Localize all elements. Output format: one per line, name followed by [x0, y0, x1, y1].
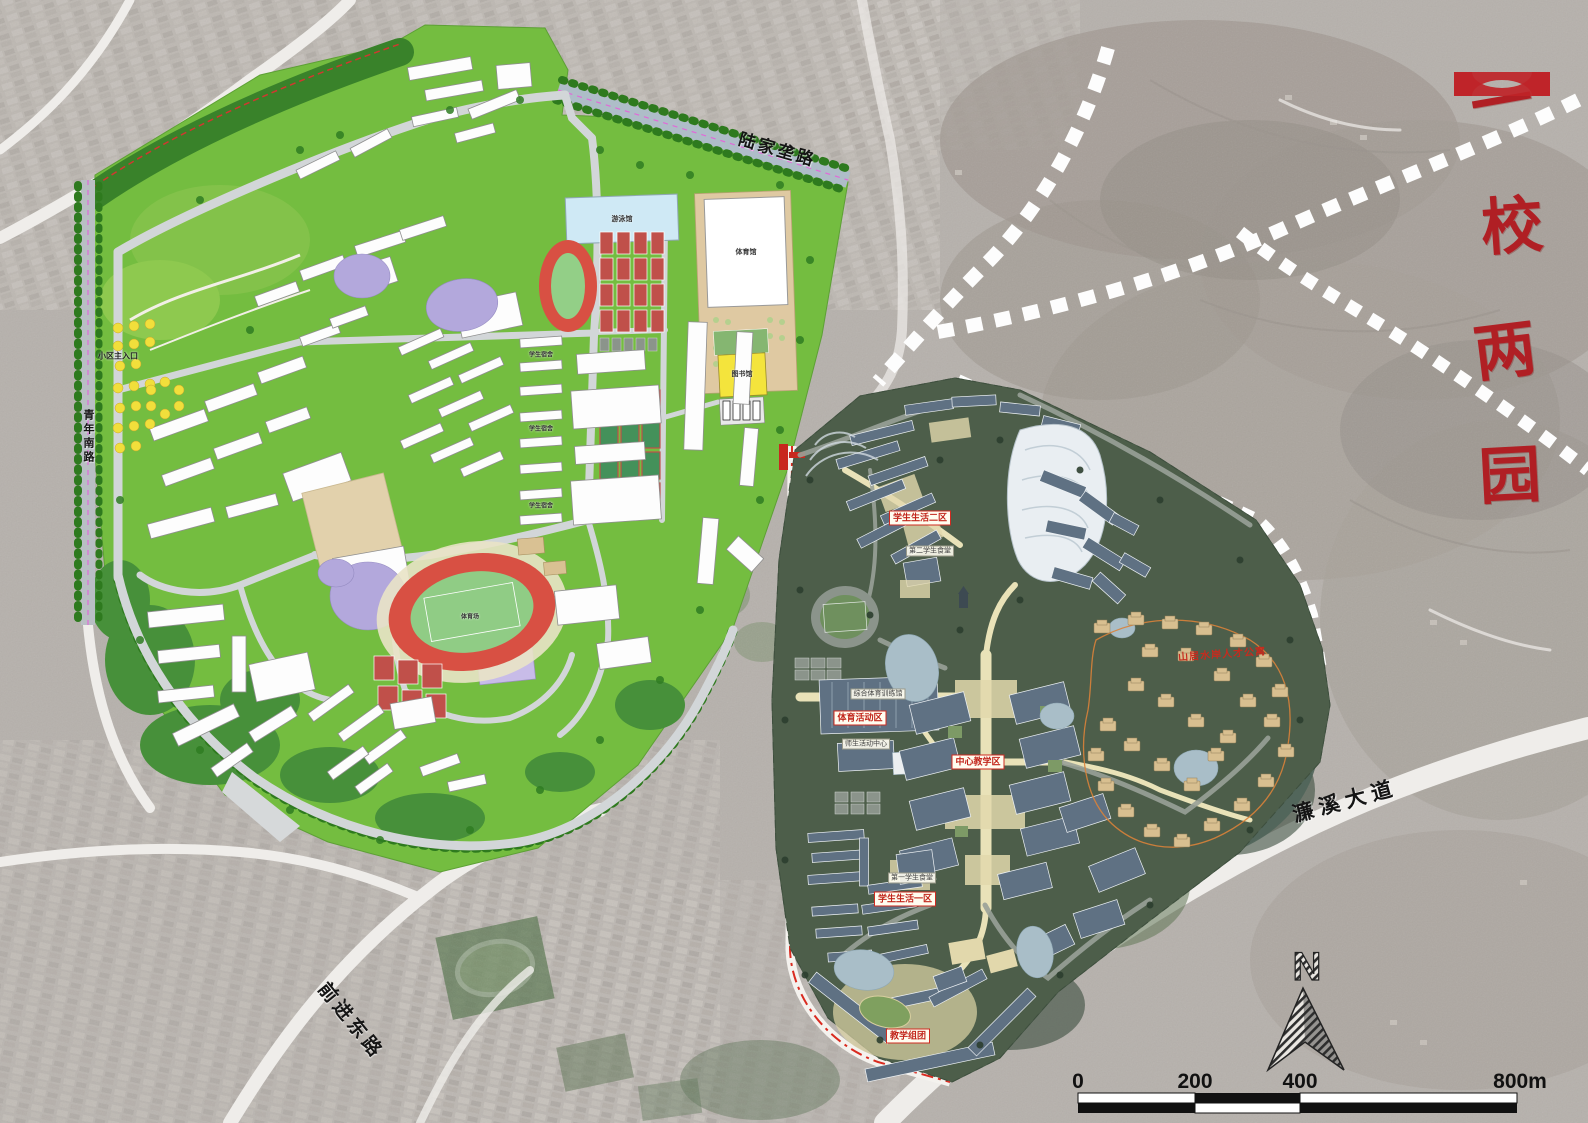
zone-label-student-life-2: 学生生活二区 [889, 511, 951, 526]
entrance-label: 小区主入口 [98, 351, 138, 362]
zone-label-central-teaching: 中心教学区 [951, 755, 1004, 770]
title-char-3: 两 [1470, 316, 1540, 389]
gymnasium-label: 体育馆 [736, 247, 757, 257]
svg-text:N: N [1293, 945, 1322, 989]
plan-title: 一 校 两 园 [1452, 70, 1564, 510]
map-canvas: N 0 200 400 800m 一 校 两 园 濂溪大道 前进东路 青年南路 … [0, 0, 1588, 1123]
activity-center-label: 师生活动中心 [842, 739, 890, 750]
title-char-4: 园 [1477, 442, 1542, 511]
svg-text:400: 400 [1282, 1070, 1317, 1093]
training-hall-label: 综合体育训练馆 [851, 689, 906, 700]
svg-text:0: 0 [1072, 1070, 1084, 1093]
zone-label-teaching-cluster: 教学组团 [886, 1029, 930, 1044]
site-plan-svg: N 0 200 400 800m [0, 0, 1588, 1123]
natatorium-label: 游泳馆 [612, 214, 633, 224]
stadium-label: 体育场 [461, 612, 479, 621]
road-label-qingnian-south: 青年南路 [80, 409, 96, 465]
canteen-2-label: 第二学生食堂 [906, 546, 954, 557]
dormitory-label: 学生宿舍 [529, 350, 553, 359]
dormitory-label: 学生宿舍 [529, 424, 553, 433]
title-char-2: 校 [1479, 192, 1545, 262]
title-bracket-bottom [1452, 70, 1552, 98]
zone-label-student-life-1: 学生生活一区 [874, 892, 936, 907]
small-track [539, 240, 597, 332]
svg-text:800m: 800m [1493, 1070, 1547, 1093]
canteen-1-label: 第一学生食堂 [888, 873, 936, 884]
zone-label-sports-activity: 体育活动区 [833, 711, 886, 726]
svg-text:200: 200 [1177, 1070, 1212, 1093]
library-label: 图书馆 [732, 369, 753, 379]
dormitory-label: 学生宿舍 [529, 501, 553, 510]
